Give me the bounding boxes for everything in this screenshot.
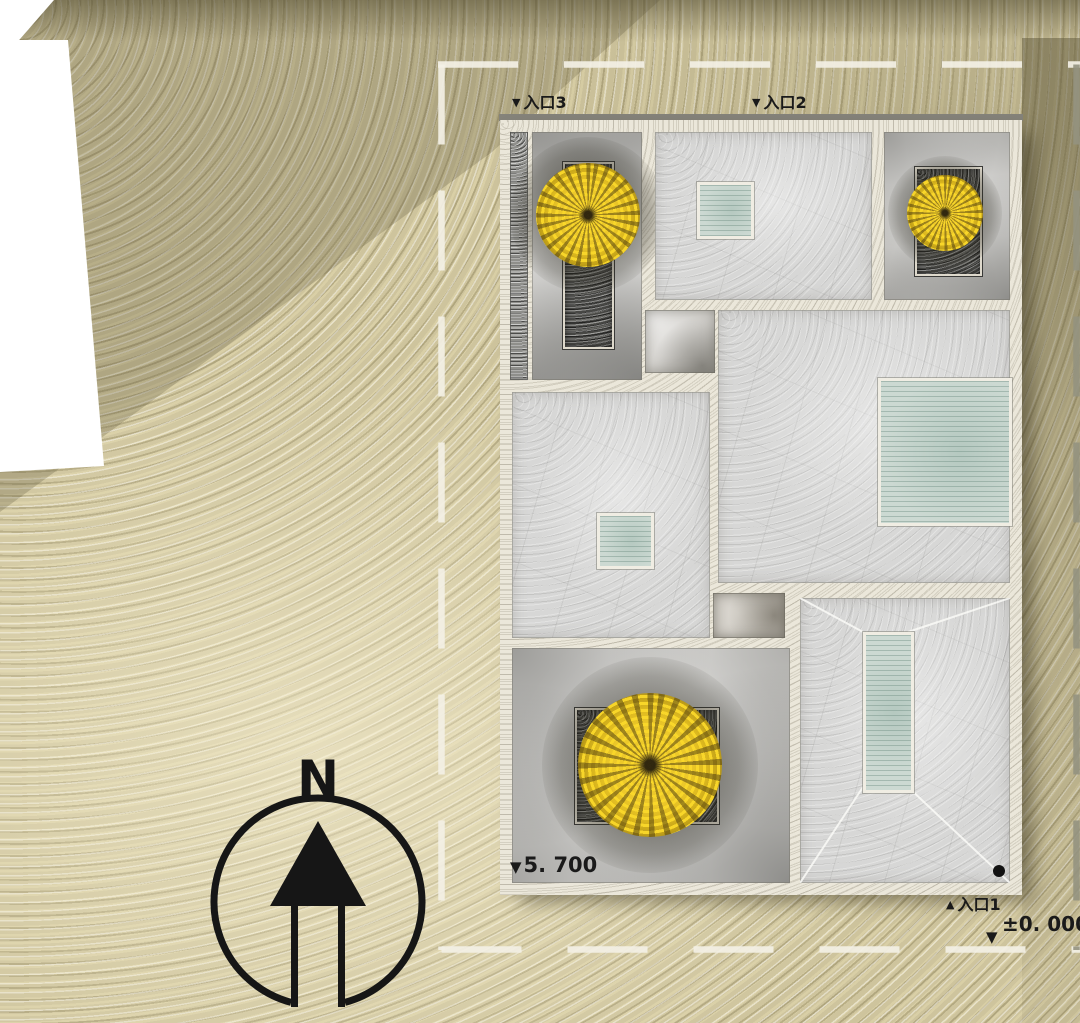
- tree-canopy-top-right: [907, 175, 983, 251]
- entrance-3-label: ▼ 入口3: [512, 95, 567, 111]
- roof-top-middle: [655, 132, 872, 300]
- tree-canopy-bottom: [578, 693, 722, 837]
- entrance-1-label: ▲ 入口1: [946, 897, 1001, 913]
- skylight-top-middle: [697, 182, 754, 239]
- courtyard-bottom-left: [512, 648, 790, 883]
- skylight-strip-bottom-right: [863, 632, 914, 793]
- skylight-middle-left: [597, 513, 654, 569]
- site-plan-rendering: ▼ 入口3 ▼ 入口2 ▲ 入口1 ▼ 5. 700 ±0. 000 ▼ N: [0, 0, 1080, 1023]
- down-triangle-icon: ▼: [510, 861, 522, 873]
- roof-center-right: [718, 310, 1010, 583]
- building-roof-plan: [500, 120, 1022, 895]
- tree-canopy-top-left: [536, 163, 640, 267]
- lightwell-center: [713, 593, 785, 638]
- up-triangle-icon: ▲: [946, 899, 954, 910]
- entrance-1-text: 入口1: [957, 897, 1000, 913]
- ground-elevation-label: ±0. 000 ▼: [986, 914, 1080, 945]
- roof-elevation-label: ▼ 5. 700: [510, 852, 597, 873]
- courtyard-top-left: [532, 132, 642, 380]
- north-arrow-shaft: [295, 906, 342, 1007]
- entrance-2-text: 入口2: [763, 95, 806, 111]
- ground-elevation-value: ±0. 000: [1002, 914, 1080, 934]
- roof-middle-left: [512, 392, 710, 638]
- north-arrow-head: [270, 821, 366, 906]
- down-triangle-icon: ▼: [512, 97, 520, 108]
- roof-bottom-right-hip: [800, 598, 1010, 883]
- point-marker-dot: [993, 865, 1005, 877]
- lightwell-upper-center: [645, 310, 715, 373]
- roof-elevation-value: 5. 700: [524, 855, 598, 876]
- north-arrow-compass: N: [205, 735, 440, 1023]
- entrance-2-label: ▼ 入口2: [752, 95, 807, 111]
- down-triangle-icon: ▼: [752, 97, 760, 108]
- north-letter: N: [297, 750, 339, 808]
- courtyard-top-right: [884, 132, 1010, 300]
- skylight-large-center-right: [878, 378, 1012, 526]
- entrance-3-text: 入口3: [523, 95, 566, 111]
